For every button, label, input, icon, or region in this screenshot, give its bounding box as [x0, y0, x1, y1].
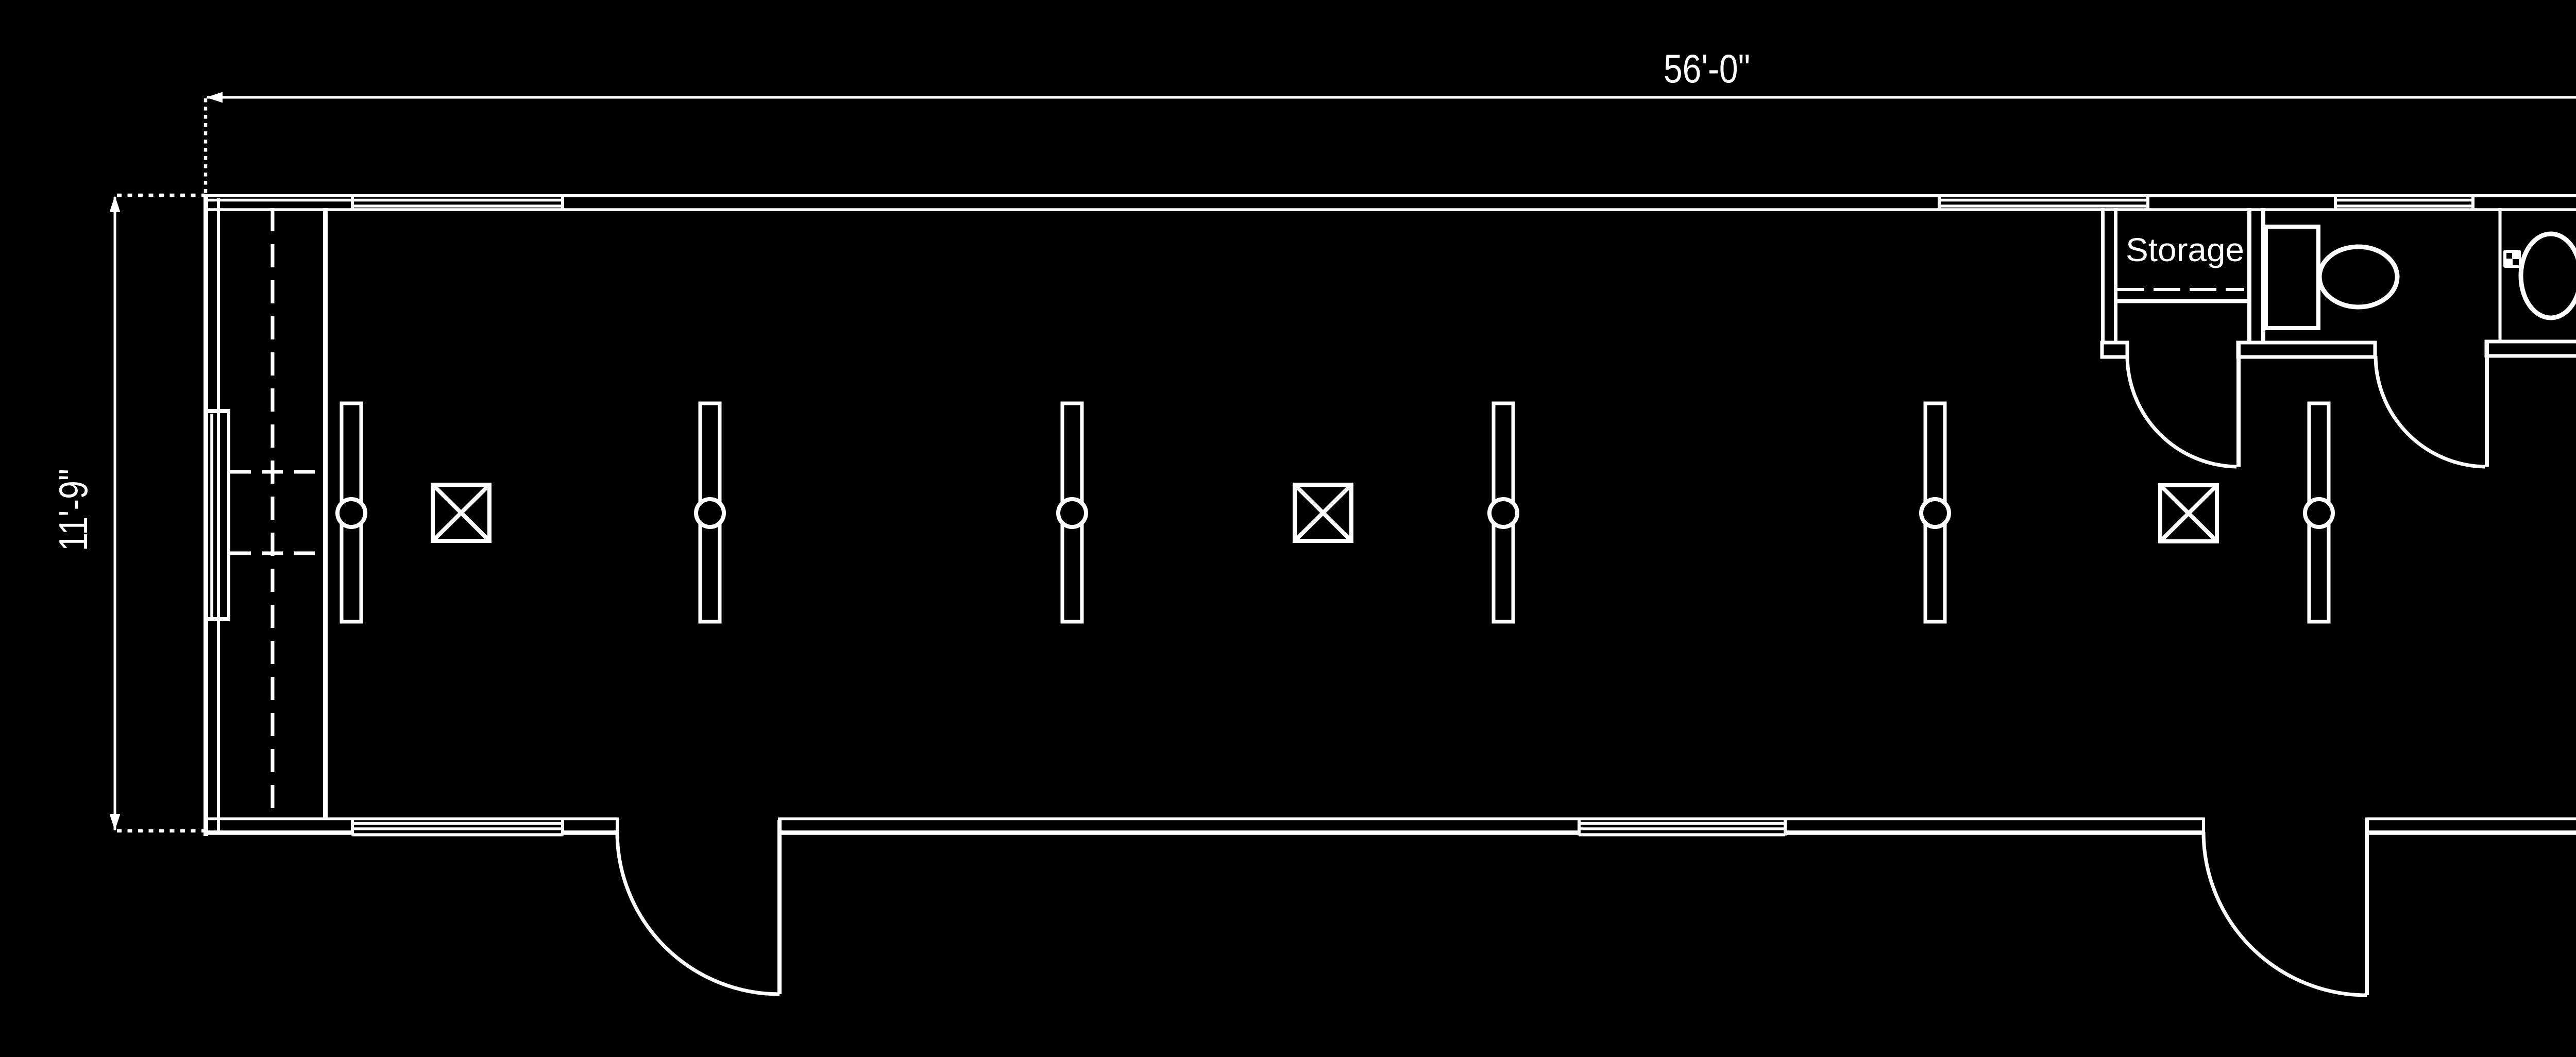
- svg-text:11'-9": 11'-9": [50, 469, 96, 551]
- svg-text:56'-0": 56'-0": [1664, 46, 1750, 91]
- svg-text:Storage: Storage: [2126, 231, 2244, 268]
